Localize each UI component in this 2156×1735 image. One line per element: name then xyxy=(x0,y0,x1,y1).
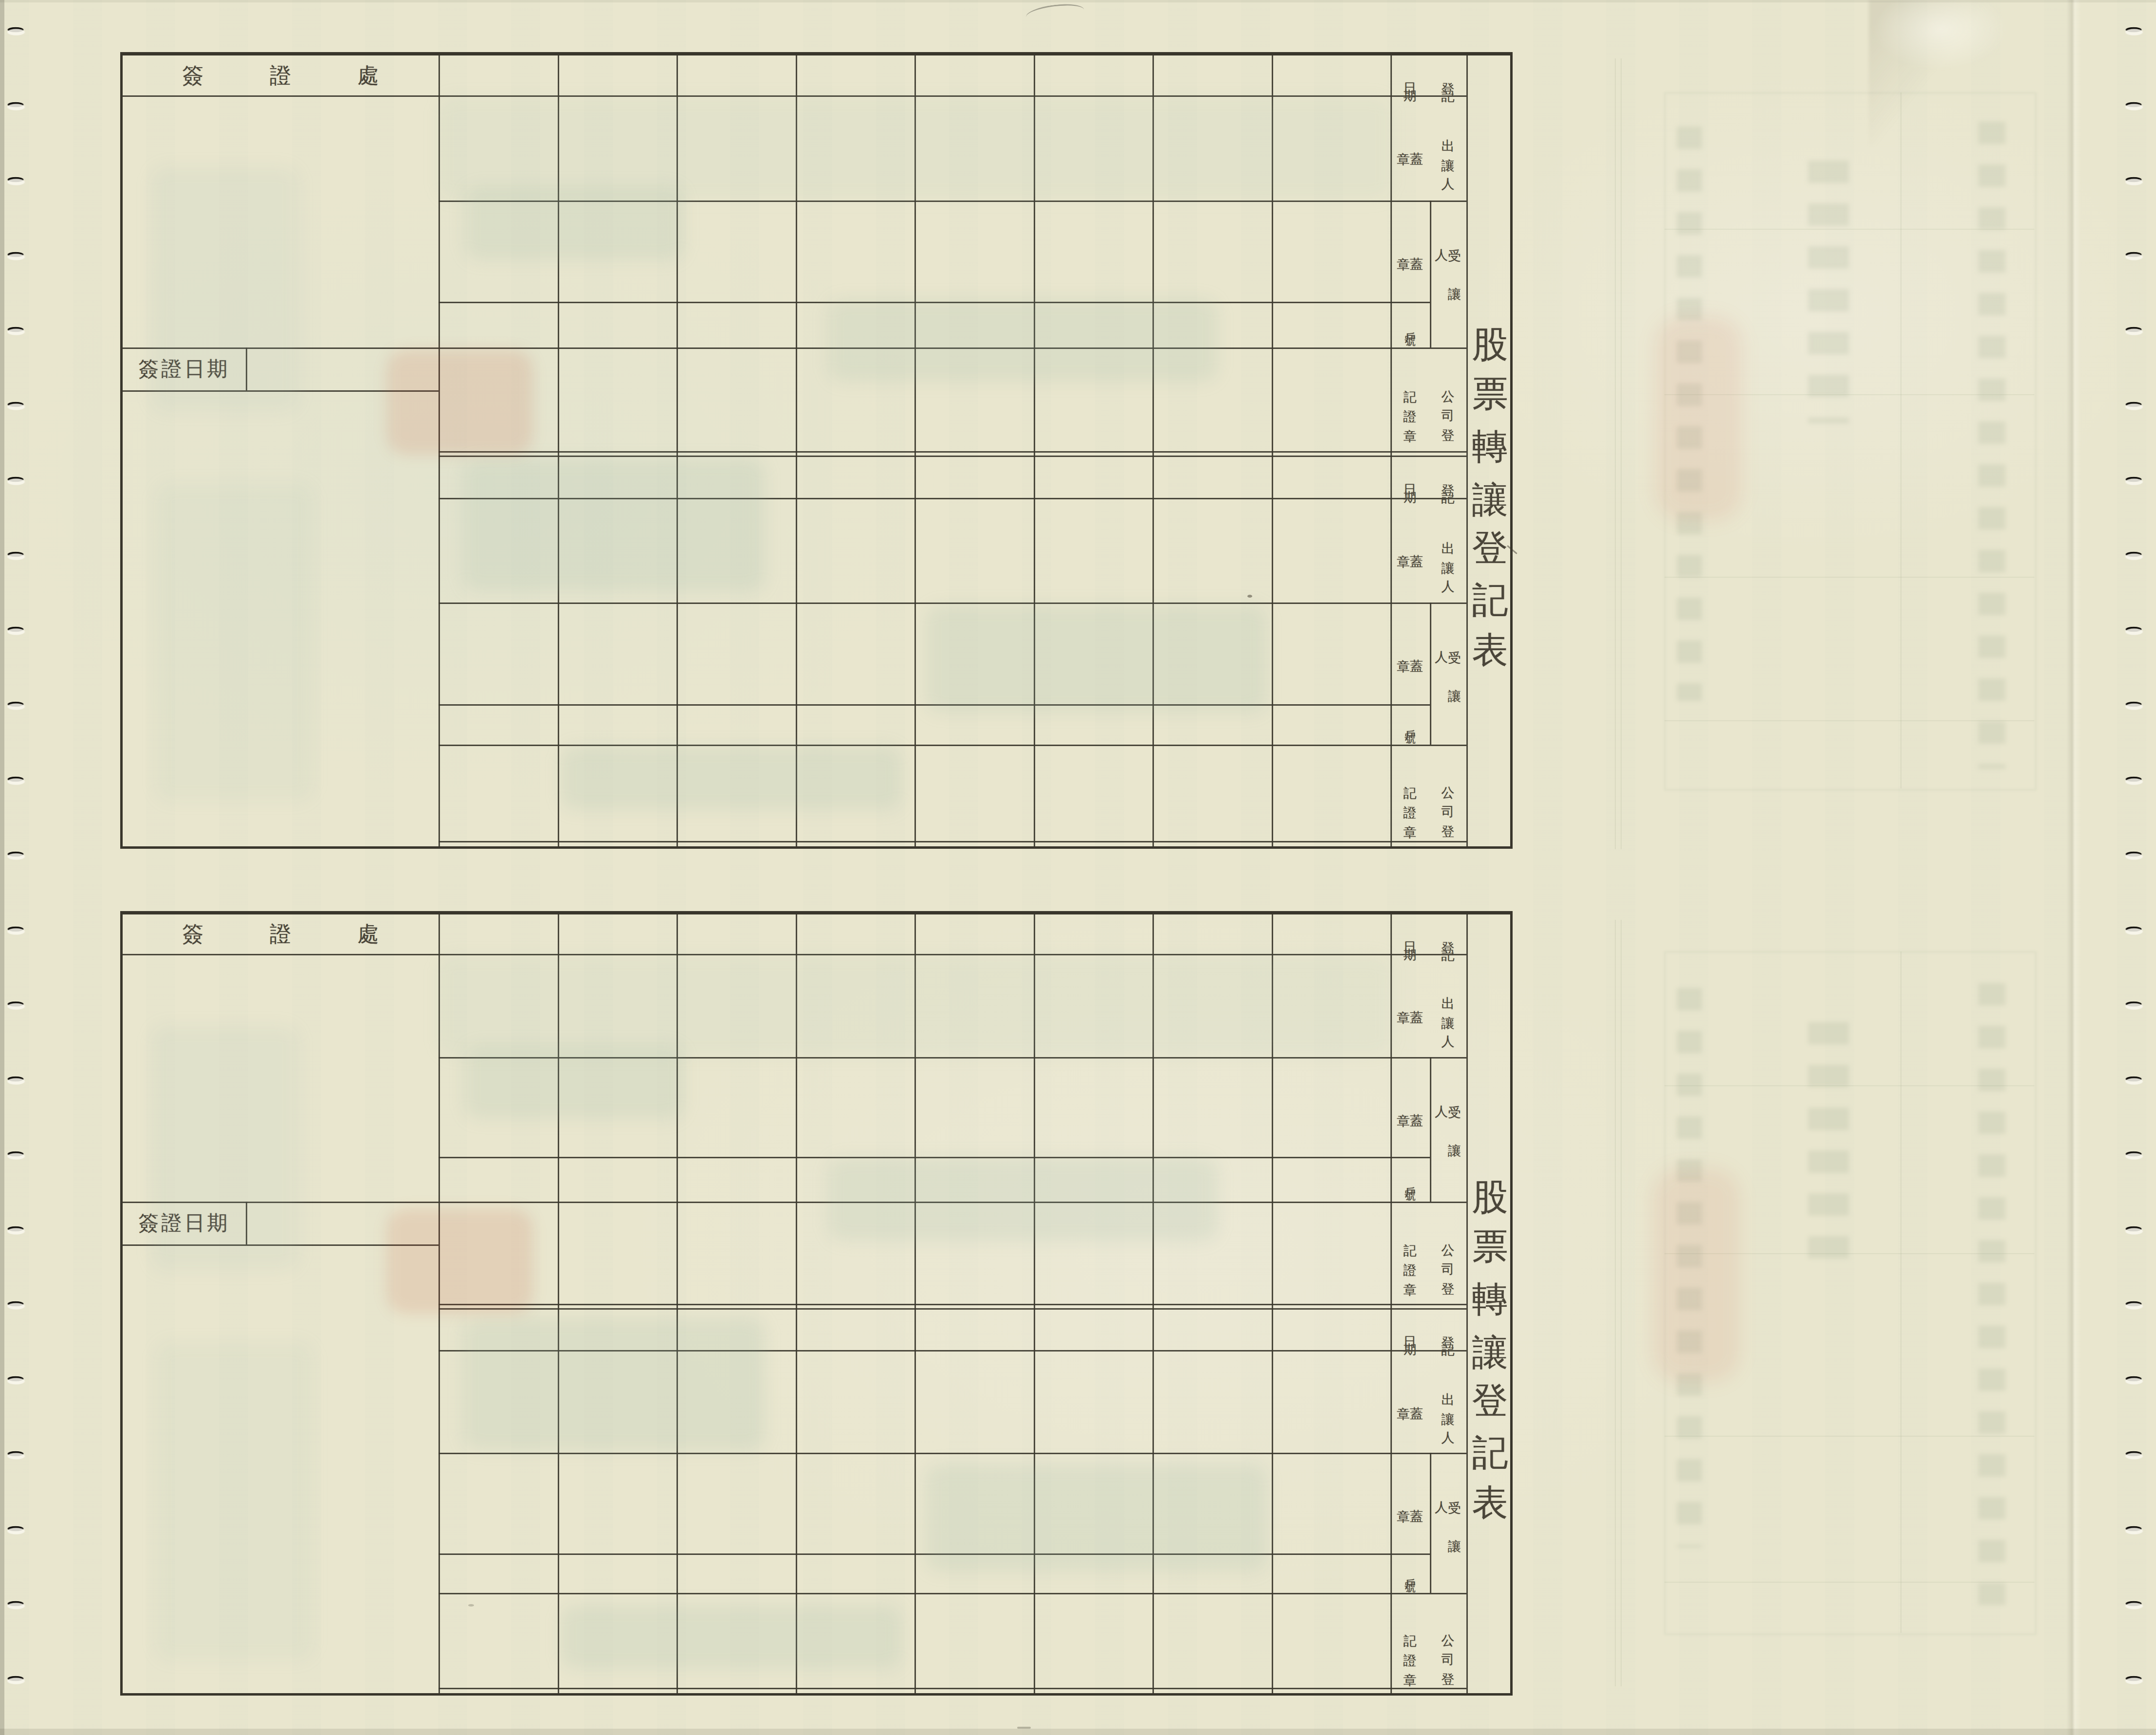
showthrough-smudge xyxy=(828,299,1218,382)
scan-edge-top xyxy=(0,0,2156,2)
grid-line xyxy=(439,745,1466,746)
showthrough-smudge xyxy=(561,1606,901,1669)
showthrough-smudge xyxy=(828,1158,1218,1241)
ink-speck xyxy=(1017,1727,1031,1729)
paper-crumple xyxy=(1869,0,2029,146)
registration-label: 登記 xyxy=(1442,72,1455,86)
showthrough-smudge xyxy=(465,1046,684,1119)
transferor-label: 出讓人 xyxy=(1442,531,1455,589)
scanned-form-page: { "form": { "title": "股票轉讓登記表", "certifi… xyxy=(0,0,2156,1735)
seal-label: 蓋章 xyxy=(1397,1000,1424,1057)
field-cell-transferee-seal: 蓋章 戶號 受讓人 xyxy=(1390,1453,1466,1592)
showthrough-smudge xyxy=(152,167,298,411)
grid-line xyxy=(439,841,1466,842)
account-number-label: 戶號 xyxy=(1405,323,1416,329)
registration-label: 登記 xyxy=(1442,474,1455,487)
date-label: 日期 xyxy=(1404,474,1417,487)
transferee-label: 受讓人 xyxy=(1435,1095,1462,1202)
transfer-table-block-2: 簽證處 簽證日期 日期 登記 蓋章 出讓人 蓋章 戶號 受讓人 記 xyxy=(120,911,1513,1696)
certification-office-label: 簽證處 xyxy=(183,61,445,90)
account-number-label: 戶號 xyxy=(1405,1570,1416,1575)
company-registration-label: 公司登 xyxy=(1442,380,1455,438)
field-cell-company-registration-seal: 記證章 公司登 xyxy=(1390,347,1466,451)
grid-line xyxy=(439,1308,1466,1310)
grid-line xyxy=(439,1304,1466,1305)
transferor-label: 出讓人 xyxy=(1442,128,1455,187)
showthrough-smudge xyxy=(926,1464,1266,1571)
showthrough-smudge xyxy=(463,1318,765,1450)
account-number-label: 戶號 xyxy=(1405,721,1416,727)
field-cell-transferor-seal: 蓋章 出讓人 xyxy=(1390,95,1466,200)
grid-line xyxy=(123,954,1466,955)
seal-label: 蓋章 xyxy=(1397,247,1424,302)
seal-label: 蓋章 xyxy=(1397,544,1424,602)
field-cell-transferee-seal: 蓋章 戶號 受讓人 xyxy=(1390,1057,1466,1202)
company-registration-label: 公司登 xyxy=(1442,1233,1455,1292)
form-title: 股票轉讓登記表 xyxy=(1473,299,1509,654)
certification-office-label: 簽證處 xyxy=(183,920,445,949)
seal-label: 蓋章 xyxy=(1397,1103,1424,1157)
registration-label: 登記 xyxy=(1442,931,1455,945)
showthrough-smudge xyxy=(926,605,1266,712)
ink-speck xyxy=(468,1604,474,1607)
scan-edge-bottom xyxy=(0,1729,2156,1735)
paper-crease xyxy=(2066,0,2081,1735)
field-cell-registration-date: 日期 登記 xyxy=(1390,456,1466,498)
form-title-column: 股票轉讓登記表 xyxy=(1466,914,1515,1693)
punch-holes-right xyxy=(2118,0,2156,1735)
certificate-seal-label: 記證章 xyxy=(1404,1233,1417,1292)
certificate-seal-label: 記證章 xyxy=(1404,1624,1417,1682)
date-label: 日期 xyxy=(1404,931,1417,945)
grid-line xyxy=(439,1688,1466,1689)
field-cell-transferee-seal: 蓋章 戶號 受讓人 xyxy=(1390,603,1466,745)
date-label: 日期 xyxy=(1404,1326,1417,1339)
date-label: 日期 xyxy=(1404,72,1417,86)
field-cell-company-registration-seal: 記證章 公司登 xyxy=(1390,1202,1466,1304)
field-cell-transferor-seal: 蓋章 出讓人 xyxy=(1390,498,1466,602)
transferee-label: 受讓人 xyxy=(1435,238,1462,347)
account-number-label: 戶號 xyxy=(1405,1178,1416,1184)
certificate-seal-label: 記證章 xyxy=(1404,776,1417,834)
seal-label: 蓋章 xyxy=(1397,142,1424,200)
grid-line xyxy=(439,456,1466,457)
field-cell-transferor-seal: 蓋章 出讓人 xyxy=(1390,1350,1466,1453)
field-cell-company-registration-seal: 記證章 公司登 xyxy=(1390,1593,1466,1693)
field-cell-registration-date: 日期 登記 xyxy=(1390,1308,1466,1350)
seal-label: 蓋章 xyxy=(1397,1396,1424,1453)
registration-label: 登記 xyxy=(1442,1326,1455,1339)
showthrough-smudge xyxy=(157,484,312,800)
punch-holes-left xyxy=(0,0,39,1735)
showthrough-smudge xyxy=(439,97,1390,199)
grid-line xyxy=(439,1453,1466,1454)
showthrough-smudge xyxy=(157,1343,312,1659)
pencil-squiggle xyxy=(1025,1,1085,25)
field-cell-transferee-seal: 蓋章 戶號 受讓人 xyxy=(1390,201,1466,347)
grid-line xyxy=(123,347,1466,349)
seal-label: 蓋章 xyxy=(1397,649,1424,700)
grid-line xyxy=(439,603,1466,604)
showthrough-seal-mark xyxy=(387,1209,533,1314)
ink-speck xyxy=(1247,595,1252,598)
showthrough-smudge xyxy=(152,1026,298,1270)
form-title: 股票轉讓登記表 xyxy=(1473,1152,1509,1506)
transfer-table-block-1: 簽證處 簽證日期 日期 登記 蓋章 出讓人 蓋章 戶號 受讓人 記 xyxy=(120,52,1513,849)
grid-line xyxy=(439,1593,1466,1594)
field-cell-registration-date: 日期 登記 xyxy=(1390,914,1466,954)
showthrough-smudge xyxy=(465,187,684,260)
grid-line xyxy=(123,95,1466,97)
field-cell-company-registration-seal: 記證章 公司登 xyxy=(1390,745,1466,846)
seal-label: 蓋章 xyxy=(1397,1499,1424,1549)
certification-office-cell: 簽證處 xyxy=(123,914,439,954)
scan-edge-left xyxy=(0,0,4,1735)
showthrough-seal-mark xyxy=(387,350,533,455)
field-cell-transferor-seal: 蓋章 出讓人 xyxy=(1390,954,1466,1057)
showthrough-smudge xyxy=(561,747,901,810)
field-cell-registration-date: 日期 登記 xyxy=(1390,55,1466,95)
grid-line xyxy=(123,1202,1466,1203)
grid-line xyxy=(439,451,1466,453)
showthrough-smudge xyxy=(463,459,765,591)
transferor-label: 出讓人 xyxy=(1442,1382,1455,1441)
certificate-seal-label: 記證章 xyxy=(1404,380,1417,438)
form-title-column: 股票轉讓登記表 xyxy=(1466,55,1515,846)
showthrough-smudge xyxy=(439,956,1390,1056)
transferor-label: 出讓人 xyxy=(1442,986,1455,1044)
transferee-label: 受讓人 xyxy=(1435,1491,1462,1592)
company-registration-label: 公司登 xyxy=(1442,776,1455,834)
certification-office-cell: 簽證處 xyxy=(123,55,439,95)
transferee-label: 受讓人 xyxy=(1435,640,1462,745)
company-registration-label: 公司登 xyxy=(1442,1624,1455,1682)
